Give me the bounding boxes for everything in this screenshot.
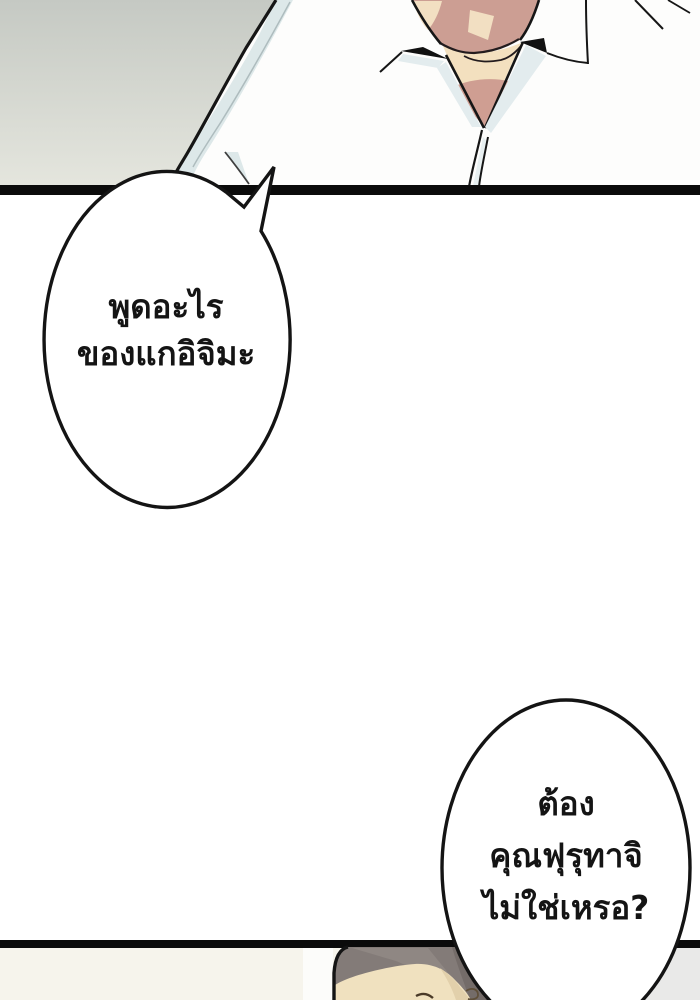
- dialogue-line: ของแกอิจิมะ: [35, 330, 297, 377]
- panel-top: [0, 0, 700, 195]
- bubble-1-dialogue: พูดอะไร ของแกอิจิมะ: [35, 283, 297, 377]
- comic-page: พูดอะไร ของแกอิจิมะ ต้อง คุณฟุรุทาจิ ไม่…: [0, 0, 700, 1000]
- dialogue-line: ต้อง: [436, 778, 696, 830]
- dialogue-line: พูดอะไร: [35, 283, 297, 330]
- wall-light-band: [303, 947, 333, 1000]
- dialogue-line: คุณฟุรุทาจิ: [436, 830, 696, 882]
- bubble-2-dialogue: ต้อง คุณฟุรุทาจิ ไม่ใช่เหรอ?: [436, 778, 696, 934]
- dialogue-line: ไม่ใช่เหรอ?: [436, 882, 696, 934]
